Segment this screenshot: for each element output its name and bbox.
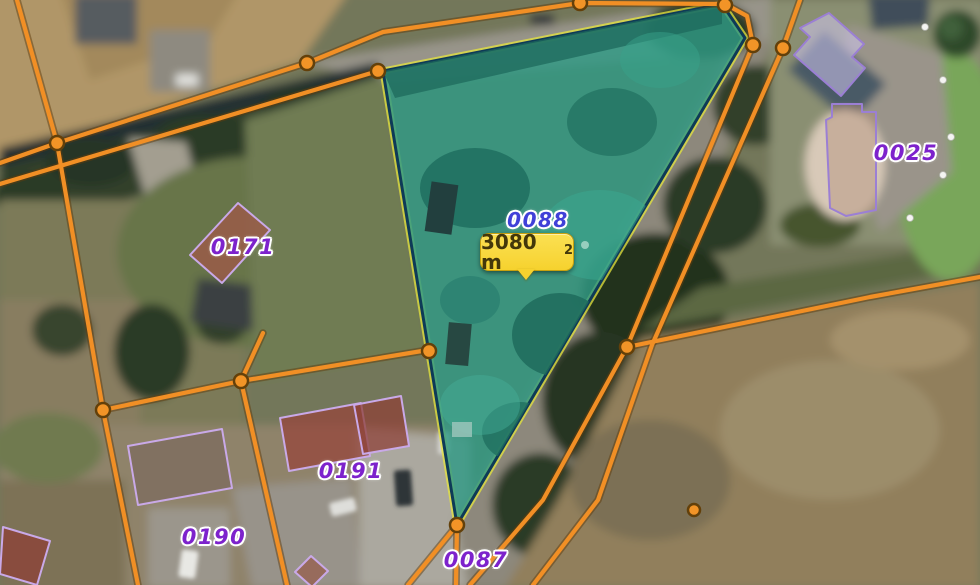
vertex-marker: [746, 38, 760, 52]
cadastre-map-viewport[interactable]: 0088 0171 0025 0191 0190 0087 3080 m2: [0, 0, 980, 585]
vertex-marker: [371, 64, 385, 78]
building-outline-0025-lower: [826, 104, 876, 216]
vertex-marker-lone: [688, 504, 700, 516]
vertex-marker: [234, 374, 248, 388]
vertex-marker: [422, 344, 436, 358]
vertex-marker: [450, 518, 464, 532]
building-outline-0191-right: [354, 396, 409, 454]
vertex-marker: [776, 41, 790, 55]
area-tooltip: 3080 m2: [480, 233, 574, 271]
vertex-marker: [718, 0, 732, 12]
vertex-marker: [50, 136, 64, 150]
vertex-marker: [620, 340, 634, 354]
vertex-marker: [573, 0, 587, 10]
vertex-marker: [300, 56, 314, 70]
area-superscript: 2: [564, 244, 573, 257]
vertex-marker: [96, 403, 110, 417]
boundary-line-tip-b: [456, 525, 457, 585]
map-canvas: [0, 0, 980, 585]
area-value: 3080 m: [481, 232, 563, 272]
